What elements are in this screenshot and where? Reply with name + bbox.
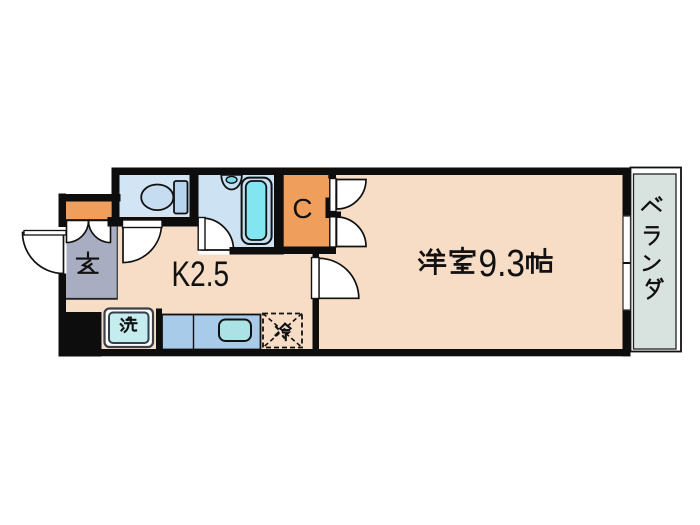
svg-text:C: C: [292, 193, 312, 224]
svg-text:9.3: 9.3: [479, 242, 525, 284]
svg-text:K2.5: K2.5: [172, 254, 230, 294]
